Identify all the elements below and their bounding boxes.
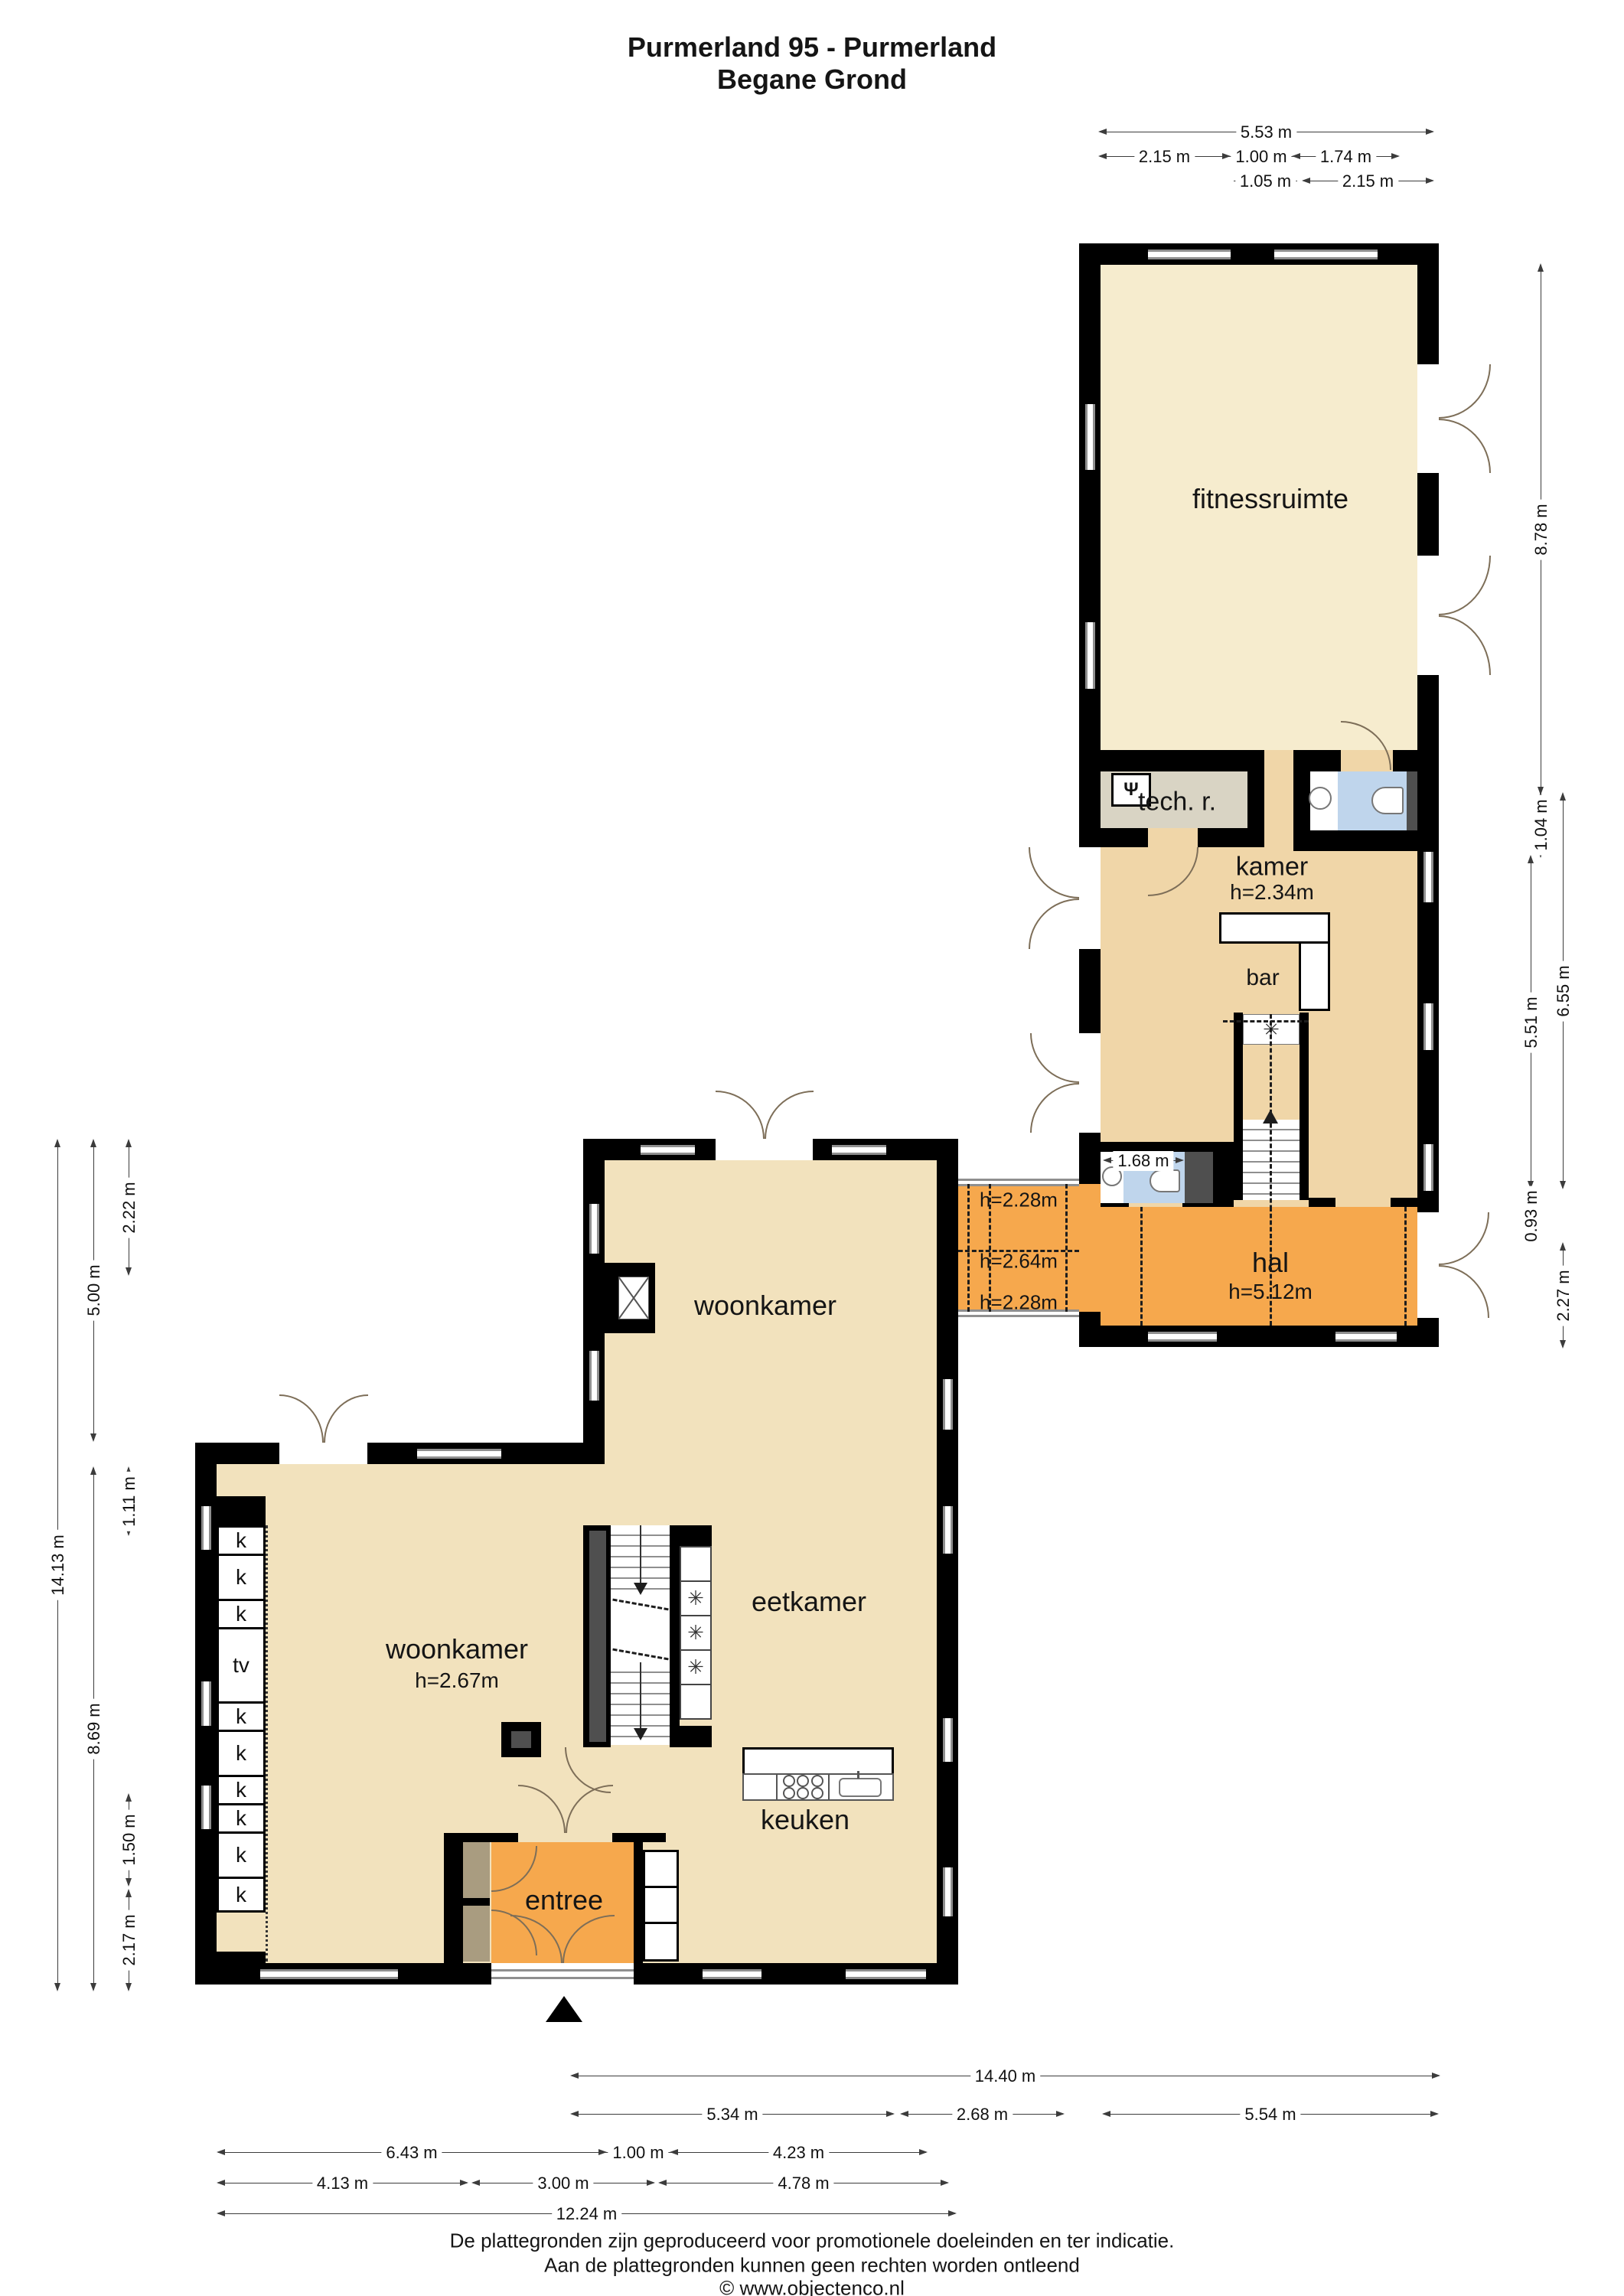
stair-wall bbox=[1234, 1013, 1243, 1200]
door-arc bbox=[1029, 847, 1079, 899]
dim-top-105: 1.05 m bbox=[1234, 181, 1297, 181]
door-opening bbox=[1417, 364, 1439, 473]
wall bbox=[1198, 828, 1264, 847]
kitchen-island bbox=[742, 1747, 894, 1776]
wall bbox=[217, 1496, 266, 1525]
dim-top-553: 5.53 m bbox=[1100, 132, 1433, 132]
door-arc bbox=[1439, 556, 1491, 615]
window bbox=[1148, 249, 1231, 259]
corridor-floor bbox=[1079, 1184, 1101, 1312]
window bbox=[1274, 249, 1378, 259]
closet-k: k bbox=[217, 1831, 266, 1879]
closet-k: k bbox=[217, 1554, 266, 1601]
window bbox=[260, 1969, 398, 1979]
wall bbox=[634, 1842, 643, 1963]
window bbox=[846, 1969, 926, 1979]
sink-icon bbox=[1309, 787, 1332, 810]
wall bbox=[680, 1726, 712, 1747]
window bbox=[589, 1351, 599, 1401]
stove-burners-icon bbox=[776, 1773, 830, 1801]
dim-bottom-100: 1.00 m bbox=[605, 2152, 671, 2153]
window bbox=[943, 1379, 953, 1430]
stair-wall bbox=[670, 1525, 680, 1747]
dim-bottom-554: 5.54 m bbox=[1104, 2114, 1437, 2115]
dim-bottom-1224: 12.24 m bbox=[218, 2213, 955, 2214]
fan-icon: ✳ bbox=[680, 1615, 712, 1651]
dim-top-215b: 2.15 m bbox=[1303, 181, 1433, 181]
footer-disclaimer-2: Aan de plattegronden kunnen geen rechten… bbox=[544, 2254, 1080, 2278]
bar-label: bar bbox=[1246, 965, 1279, 991]
dim-top-174: 1.74 m bbox=[1293, 156, 1398, 157]
closet-k: k bbox=[217, 1803, 266, 1834]
corridor-height-top: h=2.28m bbox=[980, 1189, 1058, 1212]
door-arc bbox=[1439, 364, 1491, 419]
keuken-label: keuken bbox=[761, 1804, 850, 1836]
dim-wc-width: 1.68 m bbox=[1104, 1160, 1182, 1161]
window bbox=[1423, 852, 1433, 902]
closet-cell bbox=[643, 1886, 679, 1924]
stair-arrow-down-icon bbox=[634, 1583, 647, 1595]
wall bbox=[195, 1443, 583, 1464]
door-arc bbox=[1439, 1212, 1489, 1265]
ceiling-dash-line bbox=[1140, 1207, 1143, 1326]
wall bbox=[463, 1898, 490, 1906]
closet-k: k bbox=[217, 1730, 266, 1777]
closet-k: k bbox=[217, 1525, 266, 1556]
window bbox=[958, 1179, 1079, 1186]
ceiling-dash-line bbox=[1223, 1020, 1309, 1022]
dim-bottom-300: 3.00 m bbox=[473, 2183, 654, 2183]
dim-right-655: 6.55 m bbox=[1563, 794, 1564, 1188]
page-subtitle: Begane Grond bbox=[717, 64, 907, 96]
closet-dash-line bbox=[266, 1525, 268, 1962]
wall bbox=[612, 1833, 666, 1842]
entree-label: entree bbox=[525, 1884, 603, 1916]
fireplace-inner bbox=[511, 1731, 531, 1748]
dim-bottom-423: 4.23 m bbox=[671, 2152, 926, 2153]
wall bbox=[1391, 1198, 1417, 1207]
door-arc bbox=[1439, 1265, 1489, 1318]
wall bbox=[1101, 828, 1148, 847]
dim-top-100: 1.00 m bbox=[1229, 156, 1293, 157]
toilet-icon bbox=[1150, 1169, 1180, 1192]
floorplan-page: Purmerland 95 - Purmerland Begane Grond … bbox=[0, 0, 1624, 2296]
door-arc bbox=[765, 1091, 814, 1139]
window bbox=[589, 1204, 599, 1254]
entree-closet bbox=[463, 1842, 490, 1898]
window bbox=[1423, 1003, 1433, 1050]
door-arc bbox=[1030, 1033, 1079, 1083]
wall bbox=[680, 1525, 712, 1546]
dim-right-878: 8.78 m bbox=[1541, 265, 1541, 794]
door-opening bbox=[1417, 556, 1439, 675]
hall-closets bbox=[643, 1850, 679, 1962]
dim-bottom-643: 6.43 m bbox=[218, 2152, 605, 2153]
window bbox=[1085, 404, 1095, 470]
window bbox=[1148, 1332, 1217, 1342]
dim-right-551: 5.51 m bbox=[1531, 856, 1531, 1188]
tech-room-label: tech. r. bbox=[1138, 788, 1216, 817]
window bbox=[1423, 1144, 1433, 1191]
closet-column: k k k tv k k k k k k bbox=[217, 1525, 266, 1913]
wall bbox=[444, 1833, 518, 1842]
fitnessruimte-label: fitnessruimte bbox=[1192, 483, 1348, 515]
dim-left-217: 2.17 m bbox=[129, 1890, 129, 1990]
door-opening bbox=[1079, 847, 1101, 949]
dim-left-222: 2.22 m bbox=[129, 1140, 129, 1274]
door-arc bbox=[1439, 419, 1491, 473]
door-arc bbox=[716, 1091, 765, 1139]
fireplace-flue-icon bbox=[618, 1277, 649, 1319]
footer-copyright: © www.objectenco.nl bbox=[719, 2277, 905, 2296]
dim-top-215: 2.15 m bbox=[1100, 156, 1229, 157]
wall bbox=[1393, 750, 1439, 771]
closet-k: k bbox=[217, 1701, 266, 1732]
dim-bottom-534: 5.34 m bbox=[572, 2114, 893, 2115]
bar-counter bbox=[1219, 912, 1330, 944]
ceiling-dash-line bbox=[1065, 1184, 1068, 1312]
faucet-icon bbox=[857, 1771, 859, 1779]
cabinet-cell bbox=[680, 1684, 712, 1720]
entry-door-glass bbox=[491, 1969, 634, 1979]
dim-right-104: 1.04 m bbox=[1541, 794, 1541, 856]
cooling-cells: ✳ ✳ ✳ bbox=[680, 1546, 712, 1720]
tv-cabinet: tv bbox=[217, 1627, 266, 1704]
dim-bottom-1440: 14.40 m bbox=[572, 2076, 1439, 2076]
wall bbox=[1309, 1198, 1335, 1207]
window bbox=[641, 1145, 695, 1155]
wall bbox=[217, 1952, 266, 1963]
dim-left-1413: 14.13 m bbox=[57, 1140, 58, 1990]
window bbox=[201, 1506, 211, 1550]
wall bbox=[937, 1139, 958, 1985]
dim-left-500: 5.00 m bbox=[93, 1140, 94, 1440]
dim-left-150: 1.50 m bbox=[129, 1795, 129, 1885]
dim-bottom-268: 2.68 m bbox=[902, 2114, 1063, 2115]
door-opening bbox=[1079, 1033, 1101, 1133]
door-opening bbox=[716, 1139, 813, 1160]
stair-arrow-up-icon bbox=[1263, 1110, 1278, 1124]
dim-bottom-478: 4.78 m bbox=[660, 2183, 947, 2183]
window bbox=[943, 1718, 953, 1762]
stair-wall bbox=[1300, 1013, 1309, 1200]
wall bbox=[444, 1842, 463, 1963]
dim-left-111: 1.11 m bbox=[129, 1468, 129, 1534]
door-arc bbox=[279, 1394, 324, 1443]
eetkamer-label: eetkamer bbox=[752, 1586, 866, 1618]
window bbox=[1085, 622, 1095, 689]
door-opening bbox=[1417, 1212, 1439, 1318]
door-opening bbox=[279, 1443, 367, 1464]
ceiling-dash-line bbox=[967, 1184, 970, 1312]
corridor-height-mid: h=2.64m bbox=[980, 1250, 1058, 1274]
fan-icon: ✳ bbox=[680, 1580, 712, 1616]
entree-closet bbox=[463, 1906, 490, 1962]
fan-icon: ✳ bbox=[680, 1649, 712, 1685]
bar-counter bbox=[1299, 941, 1330, 1011]
entrance-arrow bbox=[546, 1996, 582, 2022]
door-arc bbox=[1030, 1083, 1079, 1133]
kamer-label: kamer bbox=[1236, 853, 1308, 882]
wall bbox=[1101, 750, 1264, 771]
dim-right-227: 2.27 m bbox=[1563, 1244, 1564, 1347]
dim-bottom-413: 4.13 m bbox=[218, 2183, 467, 2183]
window bbox=[943, 1506, 953, 1554]
dim-right-093: 0.93 m bbox=[1531, 1188, 1531, 1244]
stair-center-line bbox=[640, 1662, 641, 1731]
shaft bbox=[1185, 1152, 1213, 1203]
window bbox=[703, 1969, 761, 1979]
door-arc bbox=[324, 1394, 368, 1443]
closet-cell bbox=[643, 1850, 679, 1888]
window bbox=[201, 1681, 211, 1726]
ceiling-dash-line bbox=[1404, 1207, 1407, 1326]
woonkamer-height-label: h=2.67m bbox=[415, 1668, 499, 1693]
closet-cell bbox=[643, 1922, 679, 1962]
shaft bbox=[1407, 771, 1417, 830]
door-arc bbox=[1439, 615, 1491, 675]
stair-side-panel bbox=[589, 1531, 606, 1742]
closet-k: k bbox=[217, 1877, 266, 1913]
wall bbox=[1293, 830, 1439, 851]
window bbox=[201, 1786, 211, 1829]
woonkamer-label: woonkamer bbox=[386, 1633, 528, 1665]
wall bbox=[1213, 1152, 1234, 1203]
stair-center-line bbox=[640, 1525, 641, 1587]
page-title: Purmerland 95 - Purmerland bbox=[628, 31, 996, 64]
closet-k: k bbox=[217, 1599, 266, 1629]
window bbox=[417, 1449, 501, 1459]
closet-k: k bbox=[217, 1775, 266, 1805]
hal-label: hal bbox=[1252, 1247, 1289, 1279]
window bbox=[832, 1145, 886, 1155]
toilet-icon bbox=[1371, 787, 1404, 814]
kitchen-sink-icon bbox=[839, 1778, 882, 1797]
cabinet-cell bbox=[680, 1546, 712, 1582]
hal-height-label: h=5.12m bbox=[1228, 1280, 1313, 1304]
stair-arrow-down-icon bbox=[634, 1728, 647, 1740]
corridor-height-bottom: h=2.28m bbox=[980, 1291, 1058, 1315]
footer-disclaimer-1: De plattegronden zijn geproduceerd voor … bbox=[450, 2229, 1175, 2253]
window bbox=[943, 1867, 953, 1916]
window bbox=[1335, 1332, 1397, 1342]
door-arc bbox=[1029, 899, 1079, 949]
woonkamer-upper-label: woonkamer bbox=[694, 1290, 836, 1322]
dim-left-869: 8.69 m bbox=[93, 1468, 94, 1990]
kamer-height-label: h=2.34m bbox=[1230, 880, 1314, 905]
